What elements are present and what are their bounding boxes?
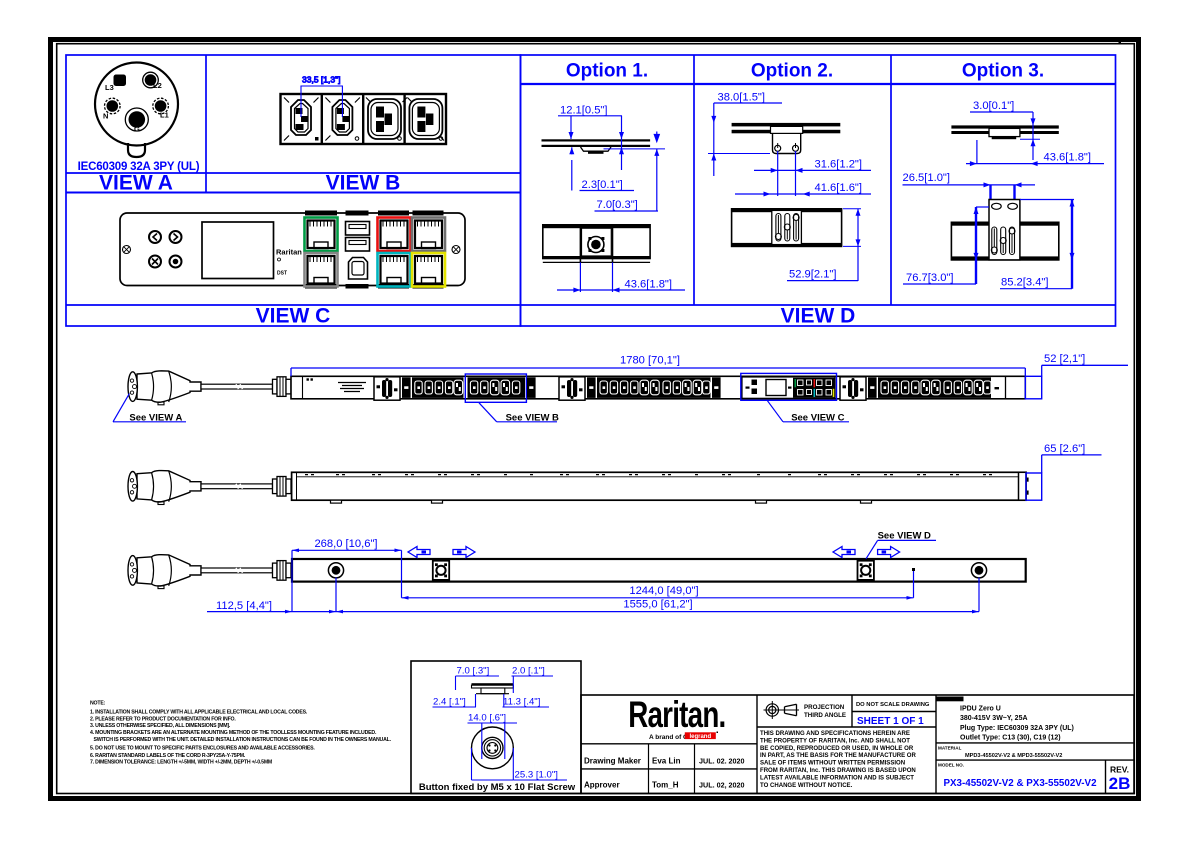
svg-text:N: N [103,112,108,121]
svg-text:MATERIAL: MATERIAL [938,746,962,751]
svg-text:Drawing Maker: Drawing Maker [584,757,641,766]
svg-text:43.6[1.8"]: 43.6[1.8"] [625,279,673,291]
svg-text:380-415V 3W~Y, 25A: 380-415V 3W~Y, 25A [960,715,1028,722]
svg-text:6. RARITAN STANDARD LABELS OF: 6. RARITAN STANDARD LABELS OF THE CORD R… [90,753,246,759]
svg-text:2.3[0.1"]: 2.3[0.1"] [582,179,623,191]
svg-text:PROJECTION: PROJECTION [804,704,845,711]
svg-text:Raritan: Raritan [276,248,302,257]
svg-text:26.5[1.0"]: 26.5[1.0"] [903,172,951,184]
svg-text:MODEL NO.: MODEL NO. [938,763,964,768]
svg-text:Raritan.: Raritan. [628,693,725,735]
svg-text:A brand of O: A brand of O [649,734,688,741]
svg-text:Approver: Approver [584,781,620,790]
svg-text:2.4 [.1"]: 2.4 [.1"] [433,697,466,708]
svg-text:Button fixed by M5 x 10 Flat S: Button fixed by M5 x 10 Flat Screw [419,782,576,793]
svg-text:VIEW A: VIEW A [99,172,173,195]
svg-text:65 [2.6"]: 65 [2.6"] [1044,443,1085,455]
svg-text:L1: L1 [160,111,169,120]
svg-text:11.3 [.4"]: 11.3 [.4"] [503,697,540,708]
svg-text:THIS DRAWING AND SPECIFICATION: THIS DRAWING AND SPECIFICATIONS HEREIN A… [760,731,910,737]
svg-text:7.0 [.3"]: 7.0 [.3"] [457,666,490,677]
svg-text:VIEW B: VIEW B [326,172,401,195]
svg-text:25.3 [1.0"]: 25.3 [1.0"] [515,770,558,781]
svg-text:IPDU Zero U: IPDU Zero U [960,706,1001,713]
svg-text:IEC60309 32A 3PY (UL): IEC60309 32A 3PY (UL) [78,161,200,173]
svg-text:41.6[1.6"]: 41.6[1.6"] [815,182,863,194]
svg-text:3.0[0.1"]: 3.0[0.1"] [973,100,1014,112]
svg-text:12.1[0.5"]: 12.1[0.5"] [560,105,608,117]
svg-text:1. INSTALLATION SHALL COMPLY W: 1. INSTALLATION SHALL COMPLY WITH ALL AP… [90,709,308,715]
svg-text:NOTE:: NOTE: [90,701,106,707]
svg-text:MPD3-45502V-V2 & MPD3-55502V-V: MPD3-45502V-V2 & MPD3-55502V-V2 [965,753,1062,759]
svg-text:LATEST AVAILABLE INFORMATION A: LATEST AVAILABLE INFORMATION AND IS SUBJ… [760,775,914,781]
svg-text:112,5 [4,4"]: 112,5 [4,4"] [216,600,272,612]
svg-text:Option 1.: Option 1. [566,61,648,82]
svg-text:38.0[1.5"]: 38.0[1.5"] [718,92,766,104]
svg-text:VIEW D: VIEW D [781,305,856,328]
svg-text:76.7[3.0"]: 76.7[3.0"] [906,272,954,284]
svg-text:JUL. 02. 2020: JUL. 02. 2020 [699,757,745,766]
svg-text:4. MOUNTING BRACKETS ARE AN AL: 4. MOUNTING BRACKETS ARE AN ALTERNATE MO… [90,730,377,736]
svg-text:FROM RARITAN, Inc. THIS DRAWIN: FROM RARITAN, Inc. THIS DRAWING IS BASED… [760,768,916,774]
svg-text:33,5 [1,3"]: 33,5 [1,3"] [302,75,340,85]
svg-text:SWITCH IS PERFORMED WITH THE U: SWITCH IS PERFORMED WITH THE UNIT. DETAI… [94,737,392,743]
svg-text:1780 [70,1"]: 1780 [70,1"] [620,355,680,367]
svg-text:JUL. 02, 2020: JUL. 02, 2020 [699,781,745,790]
svg-text:REV.: REV. [1110,765,1129,775]
svg-text:1555,0 [61,2"]: 1555,0 [61,2"] [623,599,692,611]
svg-text:IN PART, AS THE BASIS FOR THE: IN PART, AS THE BASIS FOR THE MANUFACTUR… [760,753,917,759]
svg-text:85.2[3.4"]: 85.2[3.4"] [1001,277,1049,289]
svg-text:Plug Type: IEC60309 32A 3PY (U: Plug Type: IEC60309 32A 3PY (UL) [960,725,1074,732]
svg-text:SHEET 1 OF 1: SHEET 1 OF 1 [857,716,924,727]
svg-text:Outlet Type: C13 (30), C19 (12: Outlet Type: C13 (30), C19 (12) [960,735,1061,742]
svg-text:5. DO NOT USE TO MOUNT TO SPEC: 5. DO NOT USE TO MOUNT TO SPECIFIC PARTS… [90,745,315,751]
svg-text:L3: L3 [105,83,114,92]
svg-text:Option 2.: Option 2. [751,61,833,82]
svg-text:2B: 2B [1109,774,1131,793]
svg-text:THE PROPERTY OF RARITAN, Inc.: THE PROPERTY OF RARITAN, Inc. AND SHALL … [760,738,910,744]
svg-text:2.0 [.1"]: 2.0 [.1"] [512,666,545,677]
svg-text:PX3-45502V-V2 & PX3-55502V-V2: PX3-45502V-V2 & PX3-55502V-V2 [943,778,1097,789]
svg-text:G: G [134,125,140,134]
svg-text:VIEW C: VIEW C [256,305,331,328]
svg-text:52 [2,1"]: 52 [2,1"] [1044,353,1085,365]
svg-text:2. PLEASE REFER TO PRODUCT DOC: 2. PLEASE REFER TO PRODUCT DOCUMENTATION… [90,716,236,722]
svg-text:DST: DST [277,271,287,277]
svg-text:31.6[1.2"]: 31.6[1.2"] [815,159,863,171]
svg-text:DO NOT SCALE DRAWING: DO NOT SCALE DRAWING [856,702,930,708]
svg-text:THIRD ANGLE: THIRD ANGLE [804,712,846,719]
svg-text:legrand: legrand [689,734,711,740]
svg-text:Tom_H: Tom_H [652,781,679,790]
svg-text:TO CHANGE WITHOUT NOTICE.: TO CHANGE WITHOUT NOTICE. [760,783,853,789]
svg-text:268,0 [10,6"]: 268,0 [10,6"] [314,538,377,550]
svg-text:14.0 [.6"]: 14.0 [.6"] [468,713,506,724]
svg-text:7.0[0.3"]: 7.0[0.3"] [597,199,638,211]
svg-text:7. DIMENSION TOLERANCE: LENGTH: 7. DIMENSION TOLERANCE: LENGTH +/-5MM, W… [90,759,272,765]
svg-text:Eva Lin: Eva Lin [652,757,681,766]
svg-text:43.6[1.8"]: 43.6[1.8"] [1044,152,1092,164]
svg-text:SALE OF ITEMS WITHOUT WRITTEN: SALE OF ITEMS WITHOUT WRITTEN PERMISSION [760,761,905,767]
svg-text:3. UNLESS OTHERWISE SPECIFIED,: 3. UNLESS OTHERWISE SPECIFIED, ALL DIMEN… [90,723,231,729]
svg-text:52.9[2.1"]: 52.9[2.1"] [789,269,837,281]
svg-text:L2: L2 [153,81,162,90]
svg-text:Option 3.: Option 3. [962,61,1044,82]
svg-text:1244,0 [49,0"]: 1244,0 [49,0"] [629,585,698,597]
svg-text:BE COPIED, REPRODUCED OR USED,: BE COPIED, REPRODUCED OR USED, IN WHOLE … [760,746,914,752]
